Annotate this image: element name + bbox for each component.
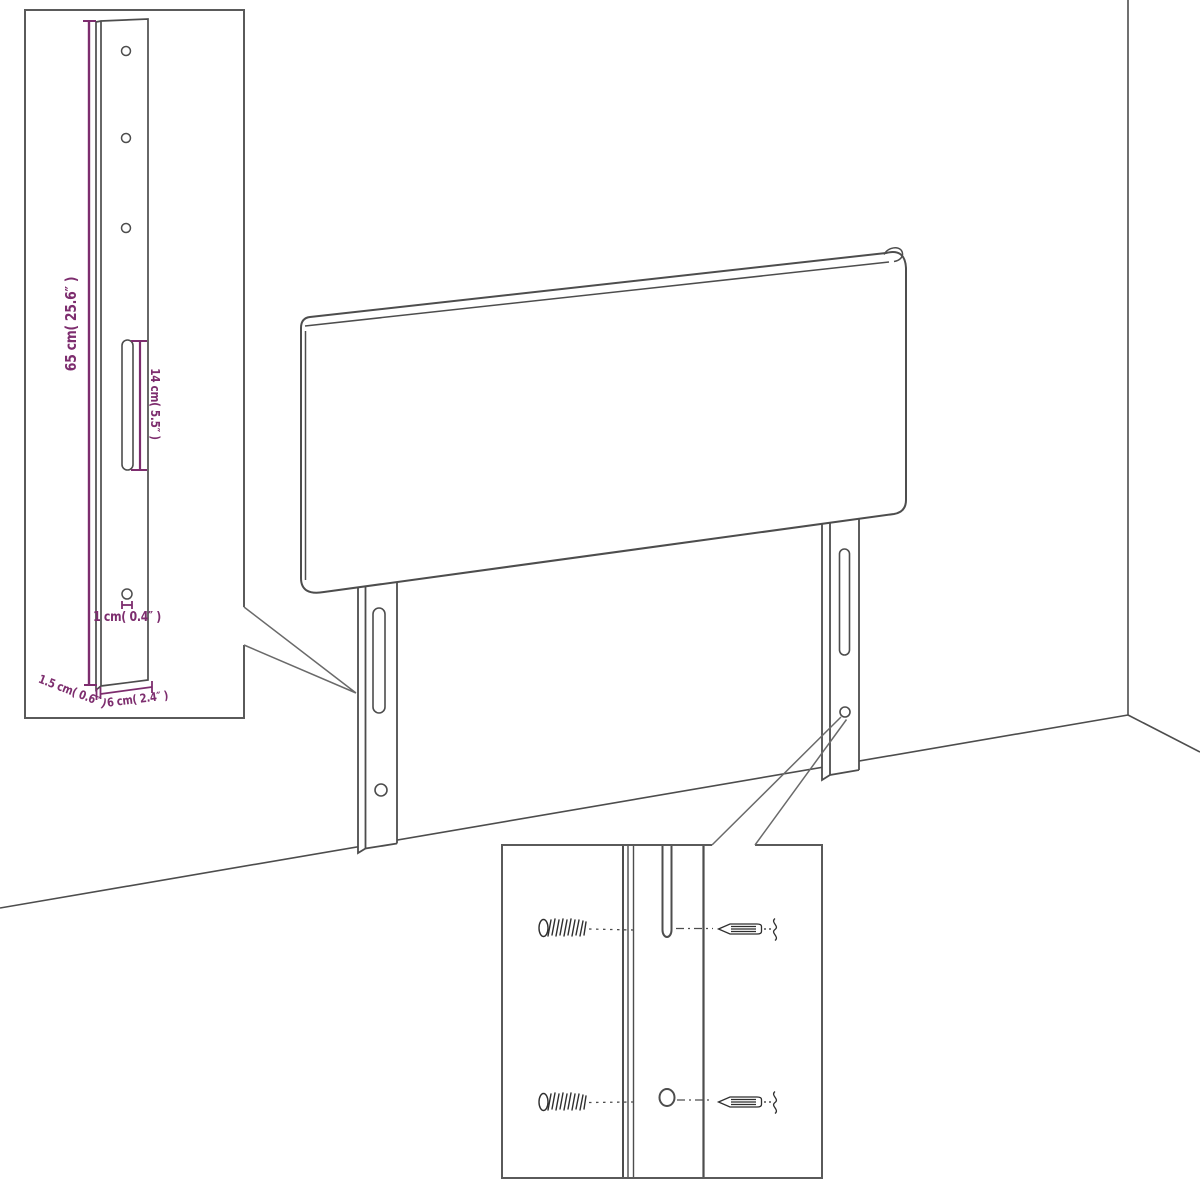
- headboard-right-leg: [822, 500, 859, 780]
- hardware-leader-lines: [589, 929, 713, 1103]
- left-leg-fill: [358, 575, 397, 853]
- headboard-left-leg: [358, 575, 397, 853]
- hardware-detail-inset: [502, 717, 847, 1178]
- machine-screw-break-squiggle: [774, 919, 777, 941]
- machine-screw-threads: [731, 927, 756, 932]
- wood-screw-threads: [548, 919, 586, 936]
- machine-screw-top: [719, 919, 777, 941]
- leg-inset-callout-wedge: [244, 607, 356, 693]
- wood-screw-threads: [548, 1093, 586, 1110]
- hole-label: 1 cm( 0.4″ ): [93, 609, 161, 624]
- post-hole-magnified: [660, 1089, 675, 1106]
- leader-bottom-left: [589, 1102, 633, 1103]
- wood-screw-top: [539, 919, 586, 937]
- height-dimension: [83, 21, 97, 685]
- slot-label: 14 cm( 5.5″ ): [148, 368, 163, 440]
- machine-screw-bottom: [719, 1092, 777, 1114]
- diagram-canvas: 65 cm( 25.6″ ) 14 cm( 5.5″ ) 1 cm( 0.4″ …: [0, 0, 1200, 1200]
- right-leg-fill: [822, 500, 859, 780]
- machine-screw-threads: [731, 1100, 756, 1105]
- headboard-panel: [301, 248, 906, 593]
- panel-face: [301, 252, 906, 593]
- wood-screw-head: [539, 920, 548, 937]
- wood-screw-bottom: [539, 1093, 586, 1111]
- height-label: 65 cm( 25.6″ ): [63, 277, 80, 371]
- post-magnified: [623, 846, 704, 1177]
- floor-line-left: [0, 715, 1128, 908]
- diagram-page: 65 cm( 25.6″ ) 14 cm( 5.5″ ) 1 cm( 0.4″ …: [0, 0, 1200, 1200]
- leader-top-left: [589, 929, 633, 930]
- wood-screw-head: [539, 1094, 548, 1111]
- machine-screw-break-squiggle: [774, 1092, 777, 1114]
- floor-line-right: [1128, 715, 1200, 752]
- post-slot-magnified: [663, 846, 672, 937]
